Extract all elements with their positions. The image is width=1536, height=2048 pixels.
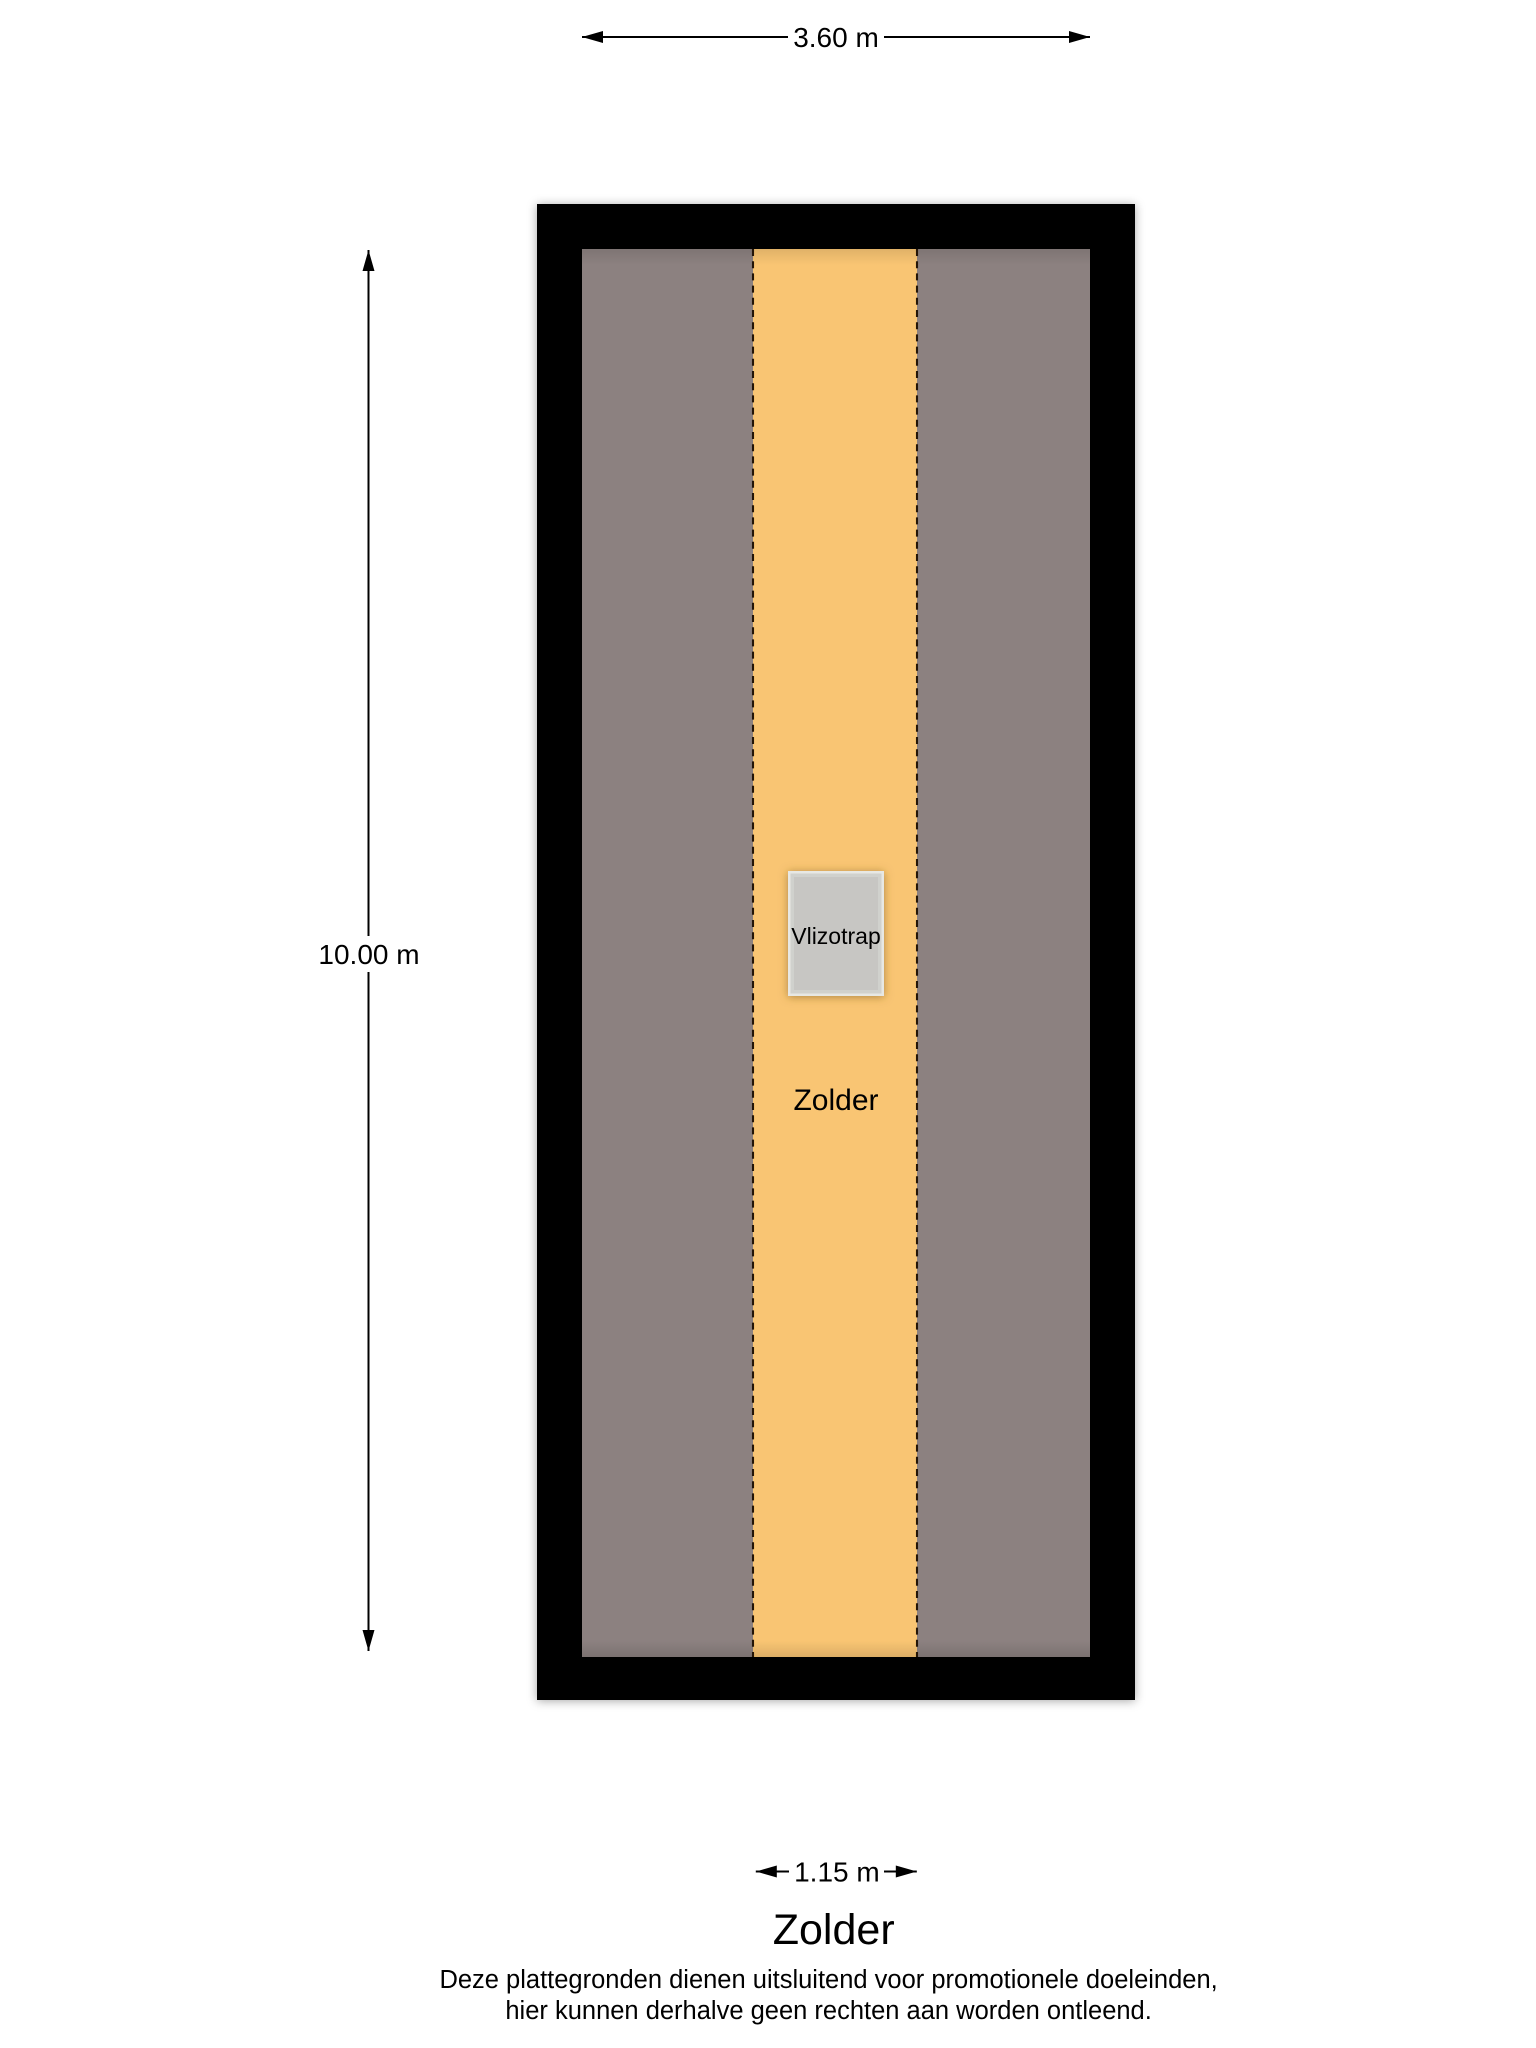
svg-text:Deze plattegronden dienen uits: Deze plattegronden dienen uitsluitend vo… — [439, 1966, 1217, 1994]
svg-text:Zolder: Zolder — [773, 1906, 895, 1954]
svg-text:Vlizotrap: Vlizotrap — [791, 923, 880, 949]
svg-text:Zolder: Zolder — [793, 1084, 878, 1117]
svg-text:hier kunnen derhalve geen rech: hier kunnen derhalve geen rechten aan wo… — [505, 1997, 1151, 2025]
svg-text:3.60 m: 3.60 m — [793, 22, 879, 53]
svg-text:10.00 m: 10.00 m — [318, 939, 419, 970]
svg-text:1.15 m: 1.15 m — [794, 1857, 880, 1888]
